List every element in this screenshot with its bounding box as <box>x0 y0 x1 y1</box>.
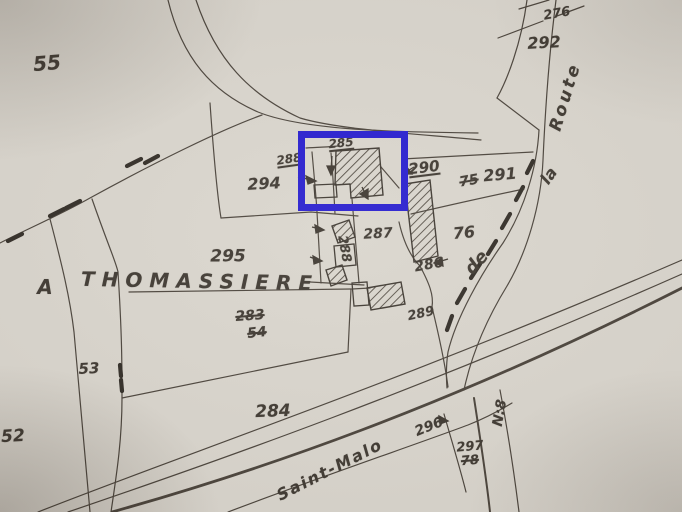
parcel-label-289: 289 <box>406 305 435 323</box>
place-label-a: A <box>37 277 52 297</box>
parcel-label-292: 292 <box>527 34 561 52</box>
parcel-label-295: 295 <box>210 249 246 266</box>
road-label-de: de <box>462 248 492 279</box>
place-label-thomassiere: THOMASSIERE <box>81 269 319 293</box>
cadastral-map: 55276292Routelade29075291762942882852872… <box>0 0 682 512</box>
road-label-n8: N:8 <box>491 398 509 427</box>
parcel-label-288-vertical: 288 <box>335 235 353 264</box>
parcel-label-55: 55 <box>32 52 61 74</box>
road-label-la: la <box>538 165 560 188</box>
parcel-label-294: 294 <box>247 175 281 193</box>
map-labels: 55276292Routelade29075291762942882852872… <box>0 0 682 512</box>
parcel-label-286: 286 <box>413 256 444 275</box>
parcel-label-53: 53 <box>78 361 100 377</box>
parcel-label-54: 54 <box>247 325 268 341</box>
parcel-label-284: 284 <box>255 403 291 421</box>
parcel-label-297: 297 <box>456 439 484 454</box>
parcel-label-283: 283 <box>235 308 265 324</box>
parcel-label-290: 290 <box>408 159 441 178</box>
parcel-label-291: 291 <box>483 166 518 185</box>
parcel-label-287: 287 <box>363 226 393 242</box>
parcel-label-76: 76 <box>452 224 476 242</box>
highlight-rectangle <box>298 131 408 211</box>
road-label-route: Route <box>548 61 585 134</box>
parcel-label-75: 75 <box>458 172 480 189</box>
parcel-label-52: 52 <box>1 428 26 446</box>
parcel-label-78: 78 <box>460 454 479 469</box>
parcel-label-296: 296 <box>413 415 445 439</box>
road-label-saint-malo: Saint-Malo <box>274 436 385 503</box>
parcel-label-276: 276 <box>543 5 572 23</box>
